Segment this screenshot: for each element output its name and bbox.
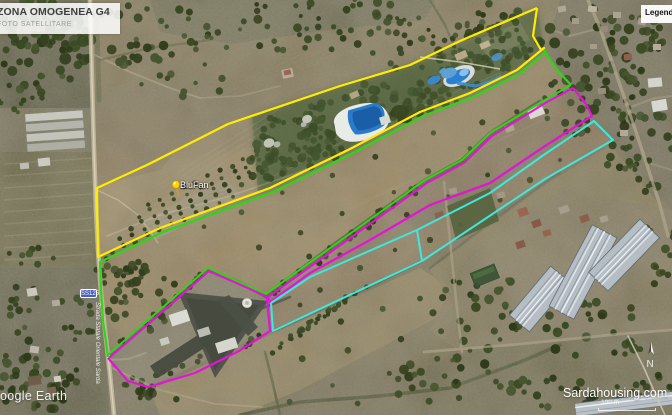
svg-text:N: N xyxy=(647,359,654,369)
